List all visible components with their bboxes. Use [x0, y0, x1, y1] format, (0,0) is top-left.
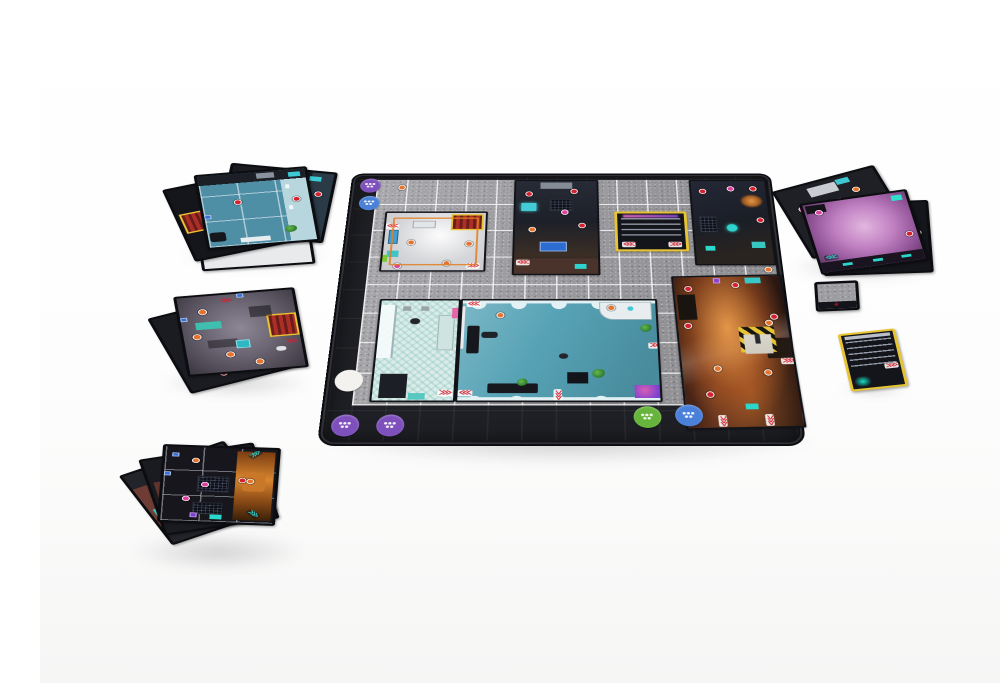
- vent-icon: [851, 186, 861, 193]
- item-icon: [201, 481, 209, 487]
- bed: [412, 221, 436, 228]
- tub: [436, 315, 455, 350]
- marker: [744, 277, 761, 283]
- alert-icon: [904, 231, 913, 237]
- wall: [458, 306, 466, 348]
- floor-tile-small: ✳: [814, 280, 860, 311]
- vent-icon: [713, 365, 722, 371]
- chevron-marker-icon: ⋘: [824, 254, 839, 261]
- alert-icon: [749, 186, 757, 191]
- marker: [835, 177, 851, 185]
- plant: [592, 369, 605, 378]
- mat: [407, 393, 424, 400]
- room-tile-violet: ⋙ ⋙: [173, 287, 309, 377]
- chevron-marker-icon: ⋙: [718, 415, 728, 427]
- vent-icon: [764, 320, 773, 326]
- marker: [873, 258, 884, 262]
- vent-icon: [407, 240, 415, 245]
- alert-icon: [292, 196, 301, 202]
- fixture: [289, 205, 294, 209]
- chevron-marker-icon: ⋘: [457, 390, 472, 397]
- marker: [891, 194, 903, 201]
- marker: [901, 254, 912, 258]
- gear-icon: [684, 323, 693, 329]
- chevron-marker-icon: ⋙: [218, 297, 233, 303]
- elevator-tile-loose: ⋙: [837, 328, 908, 391]
- fixture: [403, 306, 411, 310]
- vent-icon: [465, 241, 473, 246]
- vent-icon: [255, 358, 265, 365]
- bed: [807, 182, 840, 198]
- marker: [210, 514, 222, 519]
- chevron-marker-icon: ⋘: [467, 301, 481, 307]
- stool: [496, 312, 504, 318]
- vent-icon: [246, 479, 254, 485]
- door-marker: [172, 452, 179, 456]
- marker: [309, 176, 322, 182]
- spark-icon: ✳: [833, 302, 839, 308]
- chevron-marker-icon: ⋙: [284, 338, 299, 344]
- room-tile-corner: [689, 180, 777, 265]
- machine: [235, 339, 250, 348]
- door-marker: [180, 318, 188, 322]
- chevron-marker-icon: ⋙: [884, 362, 899, 369]
- chevron-marker-icon: ⋘: [622, 242, 636, 247]
- door-marker: [204, 215, 212, 219]
- room-tile-pool-lounge: ⋘ ⋙ ⋙ ⋘: [455, 299, 663, 402]
- room-tile-shower: ⋙: [369, 299, 461, 402]
- red-door: [266, 312, 300, 337]
- table: [567, 372, 588, 383]
- chevron-marker-icon: ⋘: [386, 223, 400, 228]
- tail-light: [238, 477, 246, 483]
- machine: [540, 182, 572, 188]
- alarm-icon: [764, 267, 773, 273]
- elevator-stairs: [621, 218, 681, 235]
- bottle: [627, 306, 633, 310]
- teal-node: [726, 224, 737, 231]
- swimmer: [559, 353, 568, 358]
- room-tile-machine: ⋘: [512, 180, 601, 275]
- machine: [677, 295, 698, 320]
- hatch-core: [743, 334, 773, 354]
- lounger: [481, 332, 498, 338]
- red-door: [451, 214, 484, 230]
- purple-marker: [190, 512, 197, 517]
- couch: [466, 326, 480, 354]
- chevron-marker-icon: ⋙: [466, 263, 480, 269]
- game-mat: ⋘ ⋙ ⋘ ⋘: [317, 174, 807, 446]
- fixture: [285, 184, 290, 188]
- pink-door-marker: [452, 308, 459, 318]
- vent-icon: [197, 309, 207, 316]
- player-token-blue: [675, 405, 704, 427]
- machine: [256, 172, 275, 179]
- vent-icon: [764, 369, 773, 376]
- machine: [751, 242, 765, 248]
- chevron-marker-icon: ⋙: [781, 358, 796, 365]
- marker: [842, 262, 853, 266]
- room-tile-lab: ⋘ ⋙: [379, 212, 488, 272]
- game-mat-scene: ⋘ ⋙ ⋘ ⋘: [317, 174, 807, 446]
- chevron-marker-icon: ⋙: [437, 390, 452, 397]
- vent-icon: [528, 227, 536, 232]
- elevator-tile: ⋘ ⋙: [614, 212, 689, 252]
- gear-icon: [684, 286, 693, 292]
- locker: [378, 374, 408, 398]
- glass-wall: [376, 305, 398, 358]
- vent-icon: [192, 457, 200, 463]
- vent-icon: [192, 334, 202, 341]
- vent-icon: [226, 351, 236, 358]
- shadow: [130, 532, 306, 572]
- floor-grate: [699, 216, 718, 232]
- item-icon: [182, 496, 190, 502]
- gear-icon: [770, 314, 779, 320]
- bottle: [607, 305, 615, 311]
- marker: [745, 403, 759, 409]
- alert-icon: [699, 189, 707, 194]
- figure: [410, 318, 421, 324]
- marker: [575, 264, 587, 269]
- purple-marker: [713, 278, 721, 283]
- elevator-light: [622, 215, 678, 218]
- door-marker: [164, 471, 171, 475]
- marker: [705, 246, 715, 251]
- marker: [287, 171, 300, 177]
- room-tile-dance-floor: ⋘: [799, 189, 929, 275]
- room-tile-burning-car: ⋙ ⋙: [157, 444, 281, 526]
- gear-icon: [706, 391, 715, 398]
- vent-icon: [442, 260, 450, 266]
- item-icon: [561, 210, 569, 215]
- alert-icon: [756, 217, 764, 222]
- item-icon: [726, 186, 734, 191]
- board-game-photo: ⋘ ⋙ ⋘ ⋘: [40, 16, 1000, 683]
- cat: [276, 345, 287, 350]
- plant: [284, 225, 297, 233]
- alert-icon: [570, 189, 578, 194]
- dark-fixture: [208, 338, 239, 348]
- machine: [195, 321, 222, 330]
- gear-icon: [731, 282, 740, 288]
- machine: [388, 230, 399, 244]
- hazard-hatch: [738, 326, 777, 352]
- chevron-marker-icon: ⋙: [553, 389, 561, 400]
- screen: [521, 203, 536, 211]
- dark-fixture: [209, 232, 227, 242]
- alert-icon: [525, 191, 533, 196]
- bench: [241, 236, 272, 243]
- plant: [640, 324, 652, 332]
- room-tile-pool-blue: [193, 166, 320, 250]
- couch: [487, 383, 538, 393]
- lamp-glow: [740, 195, 762, 207]
- fixture: [421, 306, 429, 310]
- dark-fixture: [248, 305, 272, 317]
- neon-corner: [634, 385, 660, 398]
- bar-counter: [599, 302, 652, 320]
- item-icon: [393, 263, 401, 269]
- chevron-marker-icon: ⋙: [765, 414, 775, 426]
- alert-icon: [578, 223, 586, 228]
- teal-glow: [853, 376, 873, 387]
- machine: [386, 251, 398, 257]
- tile-edge: ✳: [818, 301, 856, 310]
- access-pad: [382, 255, 388, 262]
- alert-icon: [234, 199, 243, 205]
- chevron-marker-icon: ⋘: [516, 260, 530, 266]
- door-marker: [236, 293, 244, 297]
- floor-grate: [550, 199, 573, 211]
- chevron-marker-icon: ⋙: [668, 242, 682, 247]
- table: [540, 242, 567, 252]
- player-token-green: [633, 406, 662, 428]
